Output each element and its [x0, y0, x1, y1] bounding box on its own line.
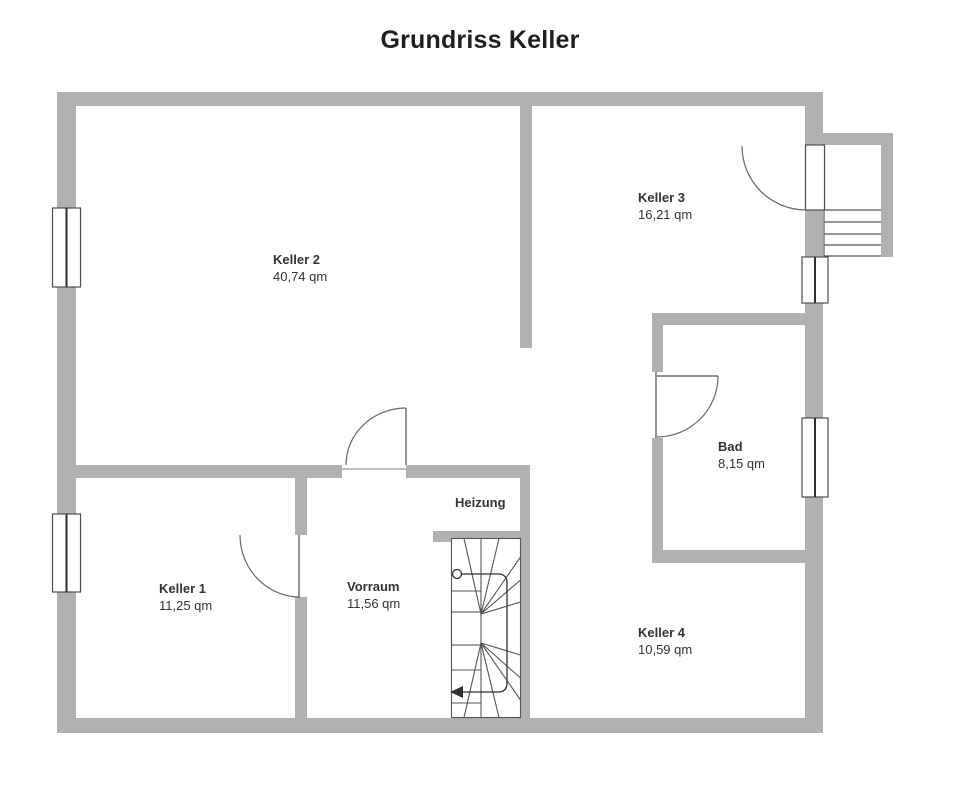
room-area: 11,25 qm — [159, 597, 212, 614]
room-area: 8,15 qm — [718, 455, 765, 472]
door-keller2-swing-arc — [346, 408, 406, 465]
wall-keller2-bottom-right — [406, 465, 530, 478]
interior-walls — [76, 106, 805, 718]
room-label-vorraum: Vorraum 11,56 qm — [347, 578, 400, 612]
wall-keller2-bottom-left — [76, 465, 342, 478]
wall-left-upper — [57, 92, 76, 208]
door-keller3-exterior — [742, 145, 825, 210]
wall-bad-left-lower — [652, 438, 663, 563]
window-keller3-right — [802, 257, 828, 303]
window-bad-right — [802, 418, 828, 497]
exterior-walls — [57, 92, 823, 733]
doors — [240, 145, 825, 597]
room-label-keller3: Keller 3 16,21 qm — [638, 189, 692, 223]
enclosure-wall-right — [881, 133, 893, 257]
wall-bad-left-upper — [652, 325, 663, 372]
wall-right-1 — [805, 92, 823, 145]
wall-right-2 — [805, 210, 823, 258]
walk-line-start-circle — [453, 570, 462, 579]
floor-plan: Grundriss Keller Keller 2 40,74 qm Kelle… — [0, 0, 960, 788]
wall-keller1-vorraum-upper — [295, 478, 307, 535]
room-label-bad: Bad 8,15 qm — [718, 438, 765, 472]
wall-bad-top — [652, 313, 805, 325]
wall-right-3 — [805, 303, 823, 418]
exterior-staircase — [823, 133, 893, 257]
door-bad — [656, 372, 718, 438]
room-label-heizung: Heizung — [455, 494, 506, 511]
wall-keller1-vorraum-lower — [295, 597, 307, 718]
wall-keller2-keller3-divider — [520, 106, 532, 348]
room-label-keller1: Keller 1 11,25 qm — [159, 580, 212, 614]
door-keller3-swing-arc — [742, 146, 805, 210]
floor-plan-drawing — [0, 0, 960, 788]
wall-left-lower — [57, 592, 76, 733]
room-area: 11,56 qm — [347, 595, 400, 612]
room-area: 16,21 qm — [638, 206, 692, 223]
wall-right-of-stairs — [520, 478, 530, 718]
wall-left-middle — [57, 287, 76, 515]
window-keller2-left — [53, 208, 81, 287]
wall-right-4 — [805, 497, 823, 733]
room-name: Bad — [718, 438, 765, 455]
wall-bottom — [57, 718, 823, 733]
room-name: Keller 1 — [159, 580, 212, 597]
door-bad-swing-arc — [657, 376, 718, 437]
door-keller3-leaf — [806, 145, 825, 210]
room-name: Keller 3 — [638, 189, 692, 206]
room-label-keller4: Keller 4 10,59 qm — [638, 624, 692, 658]
window-keller1-left — [53, 514, 81, 592]
room-label-keller2: Keller 2 40,74 qm — [273, 251, 327, 285]
room-name: Keller 2 — [273, 251, 327, 268]
door-keller2-vorraum — [342, 408, 406, 469]
room-area: 10,59 qm — [638, 641, 692, 658]
wall-bad-bottom — [652, 550, 805, 563]
wall-top — [57, 92, 823, 106]
plan-title: Grundriss Keller — [0, 26, 960, 55]
room-area: 40,74 qm — [273, 268, 327, 285]
room-name: Vorraum — [347, 578, 400, 595]
exterior-stair-treads — [824, 145, 881, 256]
door-keller1-swing-arc — [240, 535, 300, 597]
door-keller1 — [240, 535, 300, 597]
interior-staircase — [450, 539, 521, 718]
room-name: Heizung — [455, 494, 506, 511]
room-name: Keller 4 — [638, 624, 692, 641]
